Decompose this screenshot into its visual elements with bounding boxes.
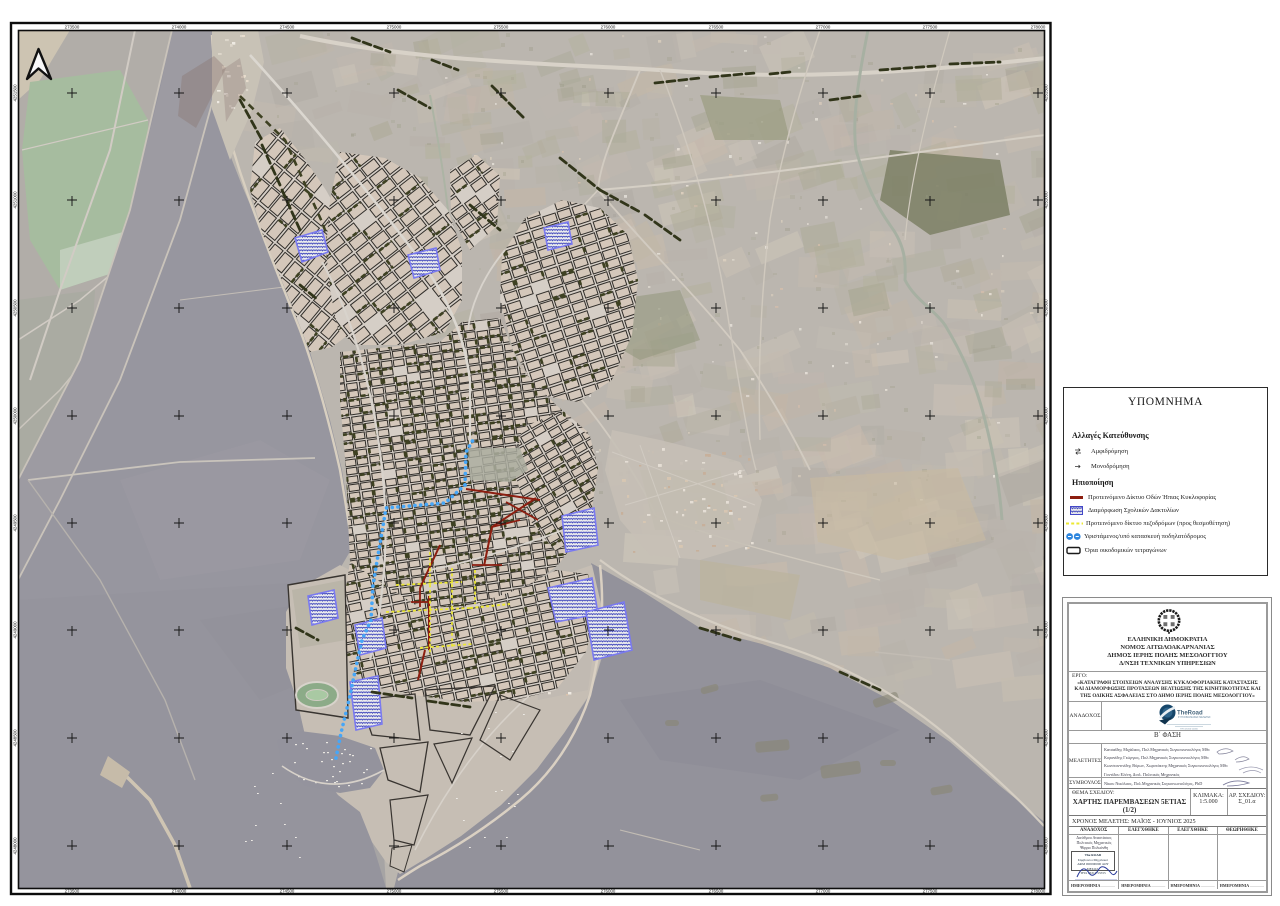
svg-text:275500: 275500 xyxy=(494,889,509,894)
svg-text:4250000: 4250000 xyxy=(12,407,17,425)
svg-text:277500: 277500 xyxy=(923,25,938,30)
svg-text:277000: 277000 xyxy=(816,889,831,894)
svg-text:277000: 277000 xyxy=(816,25,831,30)
svg-text:4250500: 4250500 xyxy=(12,299,17,317)
svg-text:273500: 273500 xyxy=(65,25,80,30)
svg-text:4248000: 4248000 xyxy=(1044,837,1049,855)
svg-text:4248500: 4248500 xyxy=(12,729,17,747)
svg-text:274000: 274000 xyxy=(172,25,187,30)
svg-text:4251000: 4251000 xyxy=(12,191,17,209)
svg-text:4248000: 4248000 xyxy=(12,837,17,855)
svg-text:278000: 278000 xyxy=(1031,25,1046,30)
svg-text:4249000: 4249000 xyxy=(1044,621,1049,639)
svg-text:273500: 273500 xyxy=(65,889,80,894)
svg-text:4251500: 4251500 xyxy=(12,84,17,102)
svg-text:4250000: 4250000 xyxy=(1044,407,1049,425)
svg-text:274500: 274500 xyxy=(280,889,295,894)
svg-text:276000: 276000 xyxy=(601,25,616,30)
svg-text:275500: 275500 xyxy=(494,25,509,30)
svg-text:ΣΥΓΚΟΙΝΩΝΙΑΚΕΣ ΜΕΛΕΤΕΣ: ΣΥΓΚΟΙΝΩΝΙΑΚΕΣ ΜΕΛΕΤΕΣ xyxy=(1178,716,1211,719)
svg-text:278000: 278000 xyxy=(1031,889,1046,894)
svg-text:ΤΗΛ 26310 00000: ΤΗΛ 26310 00000 xyxy=(1180,728,1198,730)
svg-text:276000: 276000 xyxy=(601,889,616,894)
svg-text:4250500: 4250500 xyxy=(1044,299,1049,317)
svg-text:275000: 275000 xyxy=(387,25,402,30)
svg-text:4249500: 4249500 xyxy=(12,514,17,532)
svg-text:4249000: 4249000 xyxy=(12,621,17,639)
svg-text:274000: 274000 xyxy=(172,889,187,894)
svg-text:275000: 275000 xyxy=(387,889,402,894)
svg-text:274500: 274500 xyxy=(280,25,295,30)
svg-text:276500: 276500 xyxy=(709,889,724,894)
svg-text:4251500: 4251500 xyxy=(1044,84,1049,102)
svg-text:4248500: 4248500 xyxy=(1044,729,1049,747)
svg-text:4251000: 4251000 xyxy=(1044,191,1049,209)
svg-text:277500: 277500 xyxy=(923,889,938,894)
svg-text:276500: 276500 xyxy=(709,25,724,30)
svg-text:4249500: 4249500 xyxy=(1044,514,1049,532)
